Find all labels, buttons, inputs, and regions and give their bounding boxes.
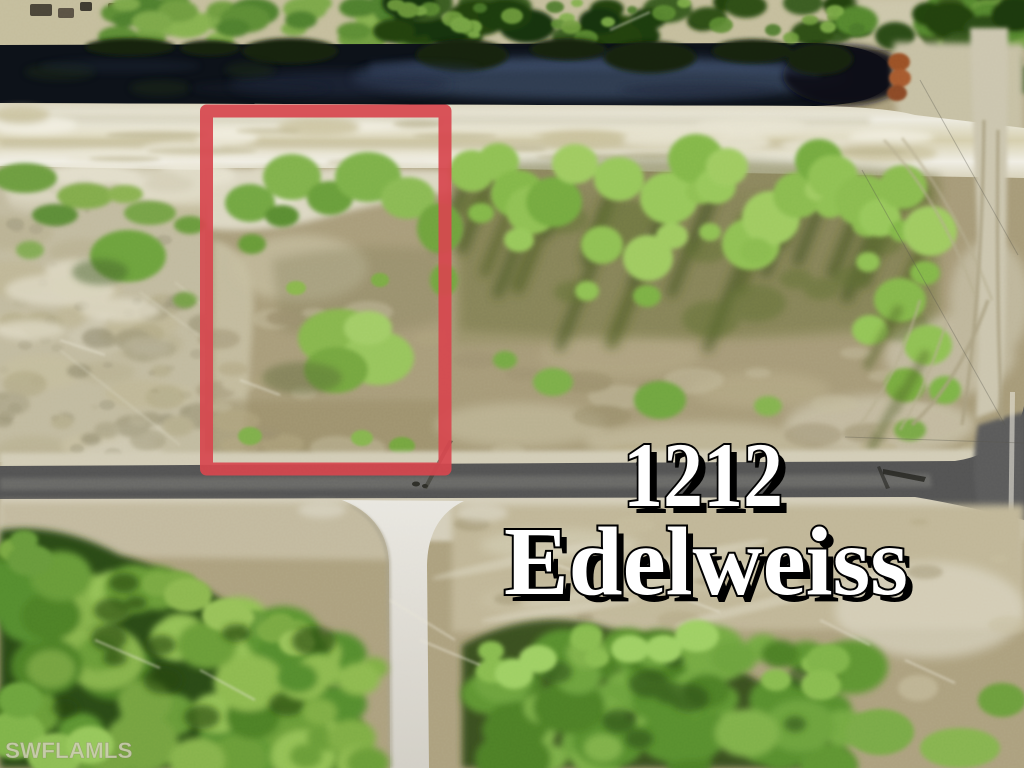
svg-text:Edelweiss: Edelweiss <box>504 508 908 615</box>
svg-text:SWFLAMLS: SWFLAMLS <box>5 738 132 763</box>
